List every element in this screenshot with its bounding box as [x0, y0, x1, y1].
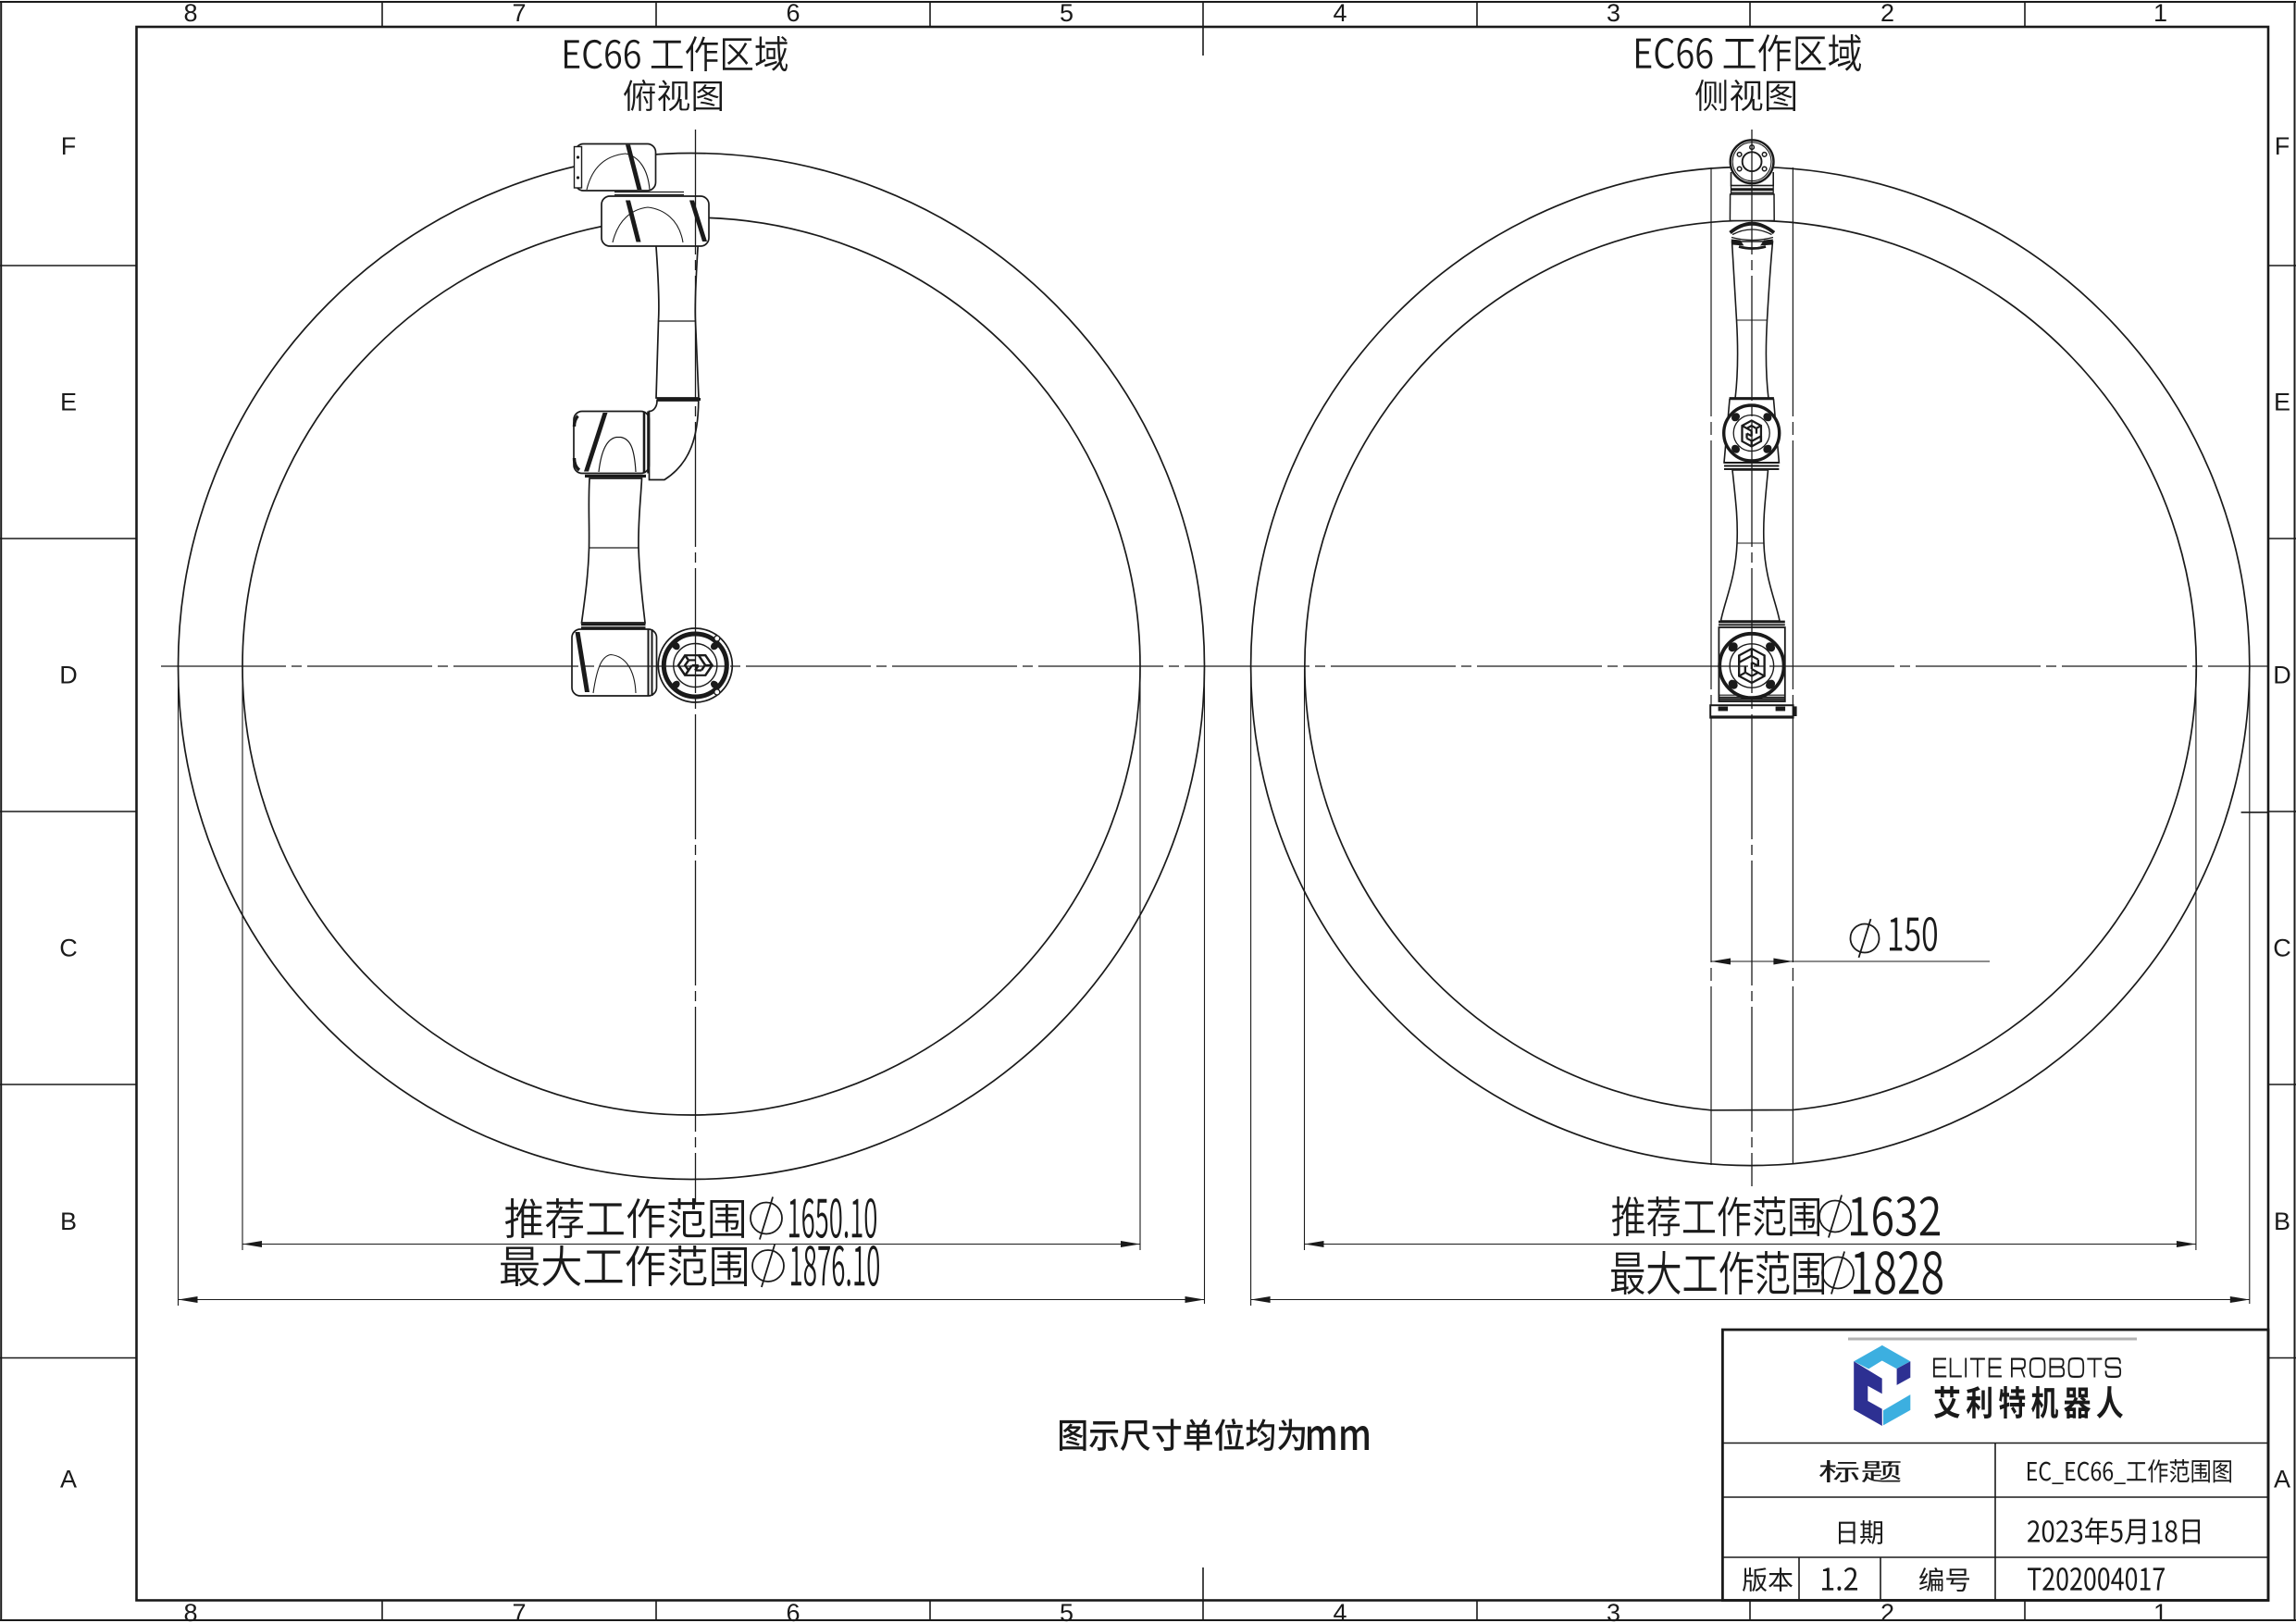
svg-text:5: 5	[1060, 0, 1074, 27]
svg-text:A: A	[2274, 1466, 2290, 1493]
svg-text:A: A	[60, 1466, 77, 1493]
svg-text:C: C	[2273, 935, 2291, 962]
svg-text:D: D	[2273, 662, 2291, 689]
svg-text:2: 2	[1880, 1599, 1894, 1623]
svg-text:6: 6	[786, 1599, 800, 1623]
svg-text:E: E	[2274, 389, 2290, 416]
svg-text:4: 4	[1333, 1599, 1347, 1623]
svg-text:5: 5	[1060, 1599, 1074, 1623]
svg-text:E: E	[60, 389, 77, 416]
svg-text:3: 3	[1607, 0, 1620, 27]
svg-text:1: 1	[2153, 1599, 2167, 1623]
svg-text:B: B	[60, 1208, 77, 1235]
svg-text:F: F	[2275, 132, 2290, 160]
svg-text:8: 8	[183, 1599, 197, 1623]
svg-text:7: 7	[512, 1599, 526, 1623]
svg-text:F: F	[61, 132, 77, 160]
svg-text:2: 2	[1880, 0, 1894, 27]
svg-text:B: B	[2274, 1208, 2290, 1235]
svg-text:8: 8	[183, 0, 197, 27]
svg-text:4: 4	[1333, 0, 1347, 27]
svg-text:C: C	[59, 935, 78, 962]
svg-text:7: 7	[512, 0, 526, 27]
svg-text:1: 1	[2153, 0, 2167, 27]
svg-text:6: 6	[786, 0, 800, 27]
svg-text:3: 3	[1607, 1599, 1620, 1623]
svg-text:D: D	[59, 662, 78, 689]
